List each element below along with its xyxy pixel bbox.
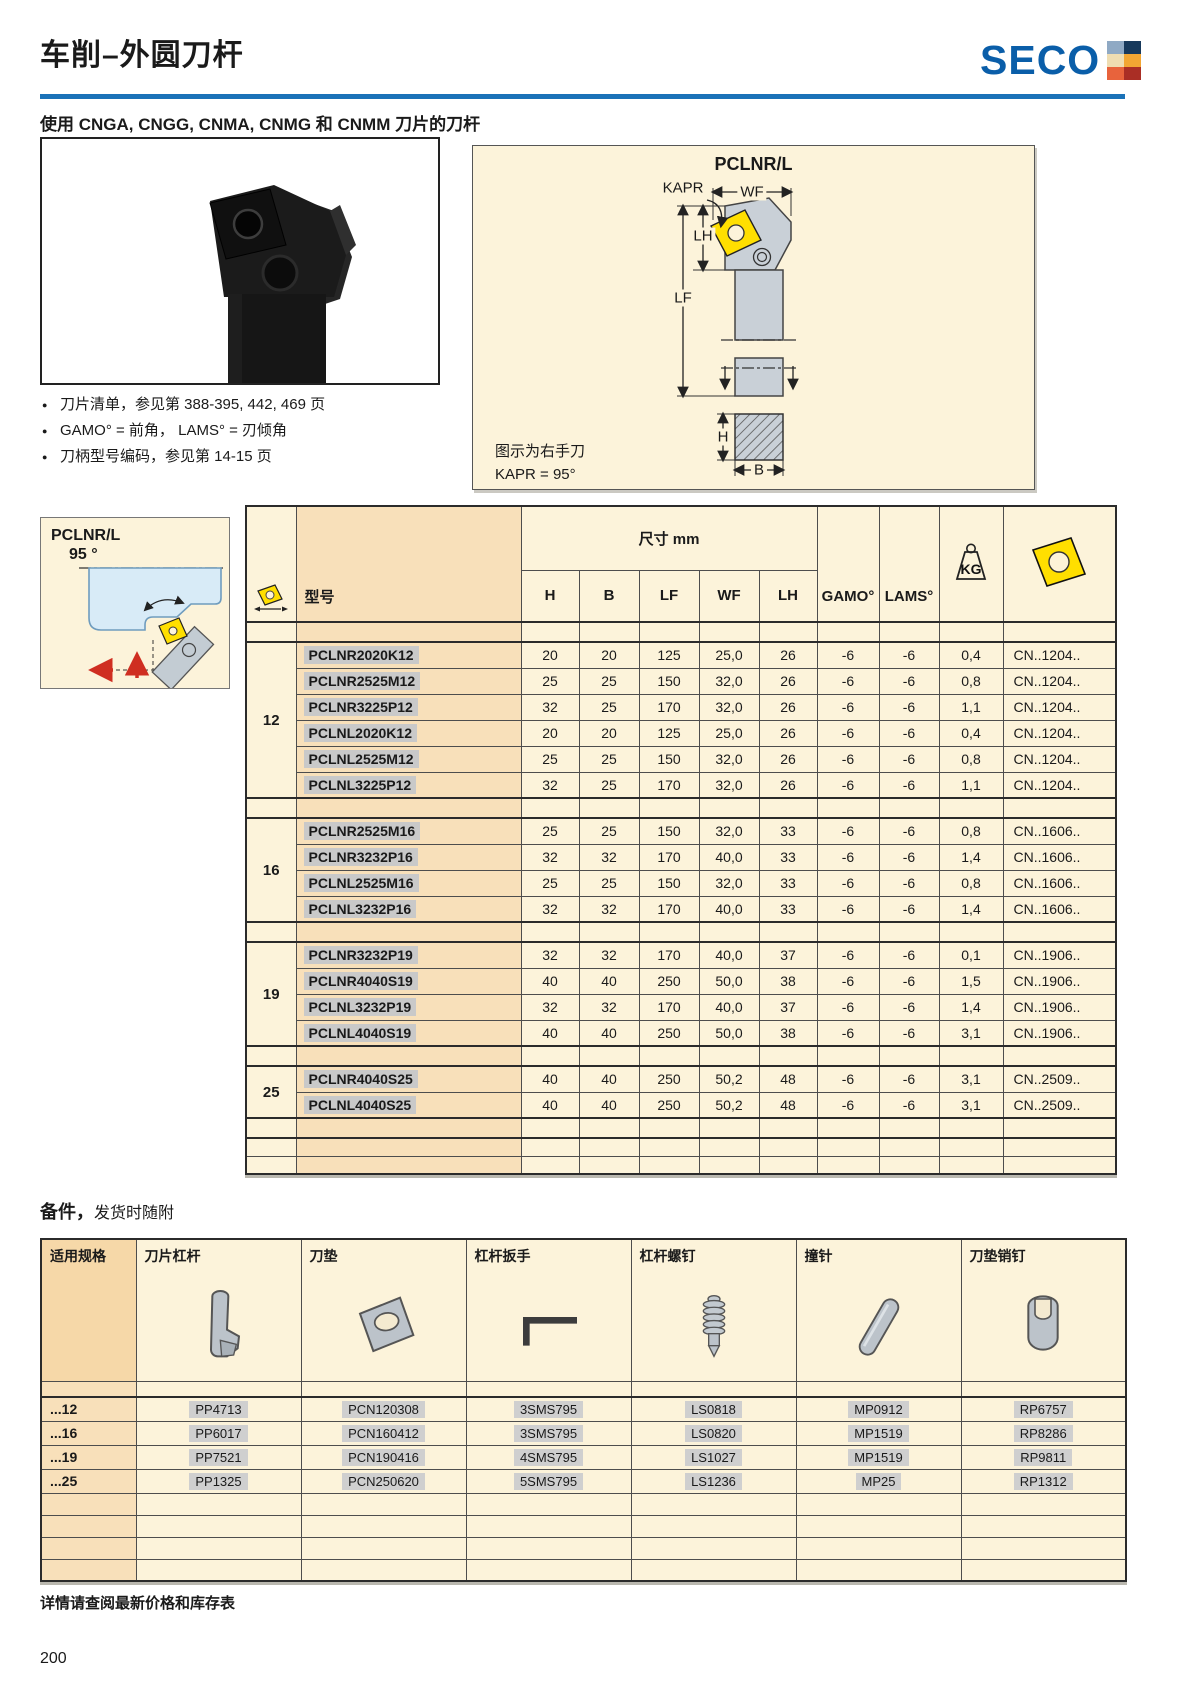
model-cell: PCLNL3232P16 <box>296 896 521 922</box>
empty-cell <box>246 1046 296 1066</box>
dim-cell: 40,0 <box>699 994 759 1020</box>
spare-col-header-size: 适用规格 <box>41 1239 136 1381</box>
empty-row <box>41 1381 1126 1397</box>
dim-cell: 32,0 <box>699 694 759 720</box>
empty-cell <box>41 1515 136 1537</box>
dim-cell: 1,1 <box>939 772 1003 798</box>
empty-cell <box>296 1156 521 1174</box>
dim-cell: 33 <box>759 844 817 870</box>
main-table-row: PCLNR3232P16323217040,033-6-61,4CN..1606… <box>246 844 1116 870</box>
model-cell: PCLNR4040S19 <box>296 968 521 994</box>
dim-cell: 48 <box>759 1092 817 1118</box>
dim-cell: 26 <box>759 720 817 746</box>
dim-cell: -6 <box>817 818 879 844</box>
spare-col-header-shim-pin: 刀垫销钉 <box>961 1239 1126 1381</box>
spare-part-cell: 3SMS795 <box>466 1421 631 1445</box>
dim-cell: 37 <box>759 942 817 968</box>
spare-part-cell: MP25 <box>796 1469 961 1493</box>
dim-cell: 150 <box>639 746 699 772</box>
model-column-header: 型号 <box>296 506 521 622</box>
dim-cell: 25 <box>579 870 639 896</box>
insert-code-cell: CN..1606.. <box>1003 818 1116 844</box>
empty-cell <box>817 1046 879 1066</box>
size-group-label: 16 <box>246 818 296 922</box>
dim-cell: 32 <box>579 844 639 870</box>
empty-cell <box>301 1537 466 1559</box>
dim-cell: 0,8 <box>939 818 1003 844</box>
dim-label-lh: LH <box>690 228 715 245</box>
dim-cell: 26 <box>759 668 817 694</box>
main-table-section: 型号 尺寸 mm GAMO° LAMS° KG <box>245 505 1117 1175</box>
spare-part-cell: 4SMS795 <box>466 1445 631 1469</box>
empty-cell <box>879 622 939 642</box>
empty-cell <box>699 1118 759 1138</box>
dim-cell: -6 <box>879 668 939 694</box>
dim-cell: 25 <box>521 668 579 694</box>
dim-cell: -6 <box>879 818 939 844</box>
empty-row <box>41 1559 1126 1581</box>
empty-cell <box>466 1493 631 1515</box>
empty-cell <box>759 622 817 642</box>
empty-cell <box>41 1559 136 1581</box>
empty-cell <box>879 1156 939 1174</box>
empty-cell <box>246 1138 296 1156</box>
seco-logo-squares <box>1107 41 1141 80</box>
size-group-label: 12 <box>246 642 296 798</box>
spare-size-cell: ...12 <box>41 1397 136 1421</box>
dim-cell: 50,2 <box>699 1066 759 1092</box>
dim-cell: -6 <box>879 694 939 720</box>
dim-cell: 25 <box>521 818 579 844</box>
dim-cell: 170 <box>639 942 699 968</box>
dim-cell: 32 <box>521 942 579 968</box>
empty-cell <box>521 1156 579 1174</box>
dim-cell: 1,4 <box>939 896 1003 922</box>
empty-cell <box>699 798 759 818</box>
dim-cell: -6 <box>879 942 939 968</box>
dim-cell: 32,0 <box>699 668 759 694</box>
application-drawing <box>41 518 229 688</box>
insert-width-icon-cell <box>246 506 296 622</box>
spare-part-cell: PP7521 <box>136 1445 301 1469</box>
dim-cell: 50,2 <box>699 1092 759 1118</box>
dim-cell: 26 <box>759 694 817 720</box>
spare-table-row: ...25PP1325PCN2506205SMS795LS1236MP25RP1… <box>41 1469 1126 1493</box>
dim-cell: 32,0 <box>699 870 759 896</box>
empty-cell <box>1003 798 1116 818</box>
empty-cell <box>521 798 579 818</box>
dim-cell: 0,4 <box>939 642 1003 668</box>
empty-cell <box>879 1046 939 1066</box>
dim-cell: 32 <box>521 772 579 798</box>
insert-code-cell: CN..1906.. <box>1003 942 1116 968</box>
dim-cell: 40 <box>521 968 579 994</box>
spare-col-header-pin: 撞针 <box>796 1239 961 1381</box>
empty-cell <box>1003 1138 1116 1156</box>
dim-cell: -6 <box>817 1066 879 1092</box>
empty-cell <box>759 1138 817 1156</box>
spare-table-body: ...12PP4713PCN1203083SMS795LS0818MP0912R… <box>41 1381 1126 1581</box>
empty-cell <box>639 798 699 818</box>
dim-cell: 25 <box>579 772 639 798</box>
empty-cell <box>41 1381 136 1397</box>
empty-cell <box>961 1537 1126 1559</box>
empty-cell <box>296 1118 521 1138</box>
diagram-caption: 图示为右手刀 KAPR = 95° <box>495 440 585 486</box>
spare-table-row: ...16PP6017PCN1604123SMS795LS0820MP1519R… <box>41 1421 1126 1445</box>
empty-cell <box>521 922 579 942</box>
empty-cell <box>699 922 759 942</box>
main-table-row: PCLNL4040S25404025050,248-6-63,1CN..2509… <box>246 1092 1116 1118</box>
empty-cell <box>796 1493 961 1515</box>
model-cell: PCLNL4040S19 <box>296 1020 521 1046</box>
dim-cell: 20 <box>521 642 579 668</box>
model-cell: PCLNL3232P19 <box>296 994 521 1020</box>
main-table-row: PCLNL4040S19404025050,038-6-63,1CN..1906… <box>246 1020 1116 1046</box>
dim-label-kapr: KAPR <box>660 180 707 197</box>
empty-cell <box>579 1138 639 1156</box>
empty-cell <box>759 1046 817 1066</box>
dim-cell: 33 <box>759 896 817 922</box>
dim-cell: 150 <box>639 818 699 844</box>
empty-cell <box>639 1046 699 1066</box>
dim-cell: 20 <box>521 720 579 746</box>
empty-cell <box>246 922 296 942</box>
empty-cell <box>817 622 879 642</box>
dim-cell: -6 <box>817 994 879 1020</box>
col-header-h: H <box>521 570 579 622</box>
main-table-row: PCLNL3225P12322517032,026-6-61,1CN..1204… <box>246 772 1116 798</box>
dim-cell: 1,1 <box>939 694 1003 720</box>
dim-cell: 40,0 <box>699 896 759 922</box>
empty-cell <box>1003 622 1116 642</box>
empty-row <box>246 922 1116 942</box>
model-cell: PCLNL2525M16 <box>296 870 521 896</box>
spare-part-cell: MP1519 <box>796 1445 961 1469</box>
spare-table-row: ...19PP7521PCN1904164SMS795LS1027MP1519R… <box>41 1445 1126 1469</box>
dim-cell: 20 <box>579 642 639 668</box>
model-cell: PCLNR4040S25 <box>296 1066 521 1092</box>
empty-cell <box>136 1493 301 1515</box>
empty-cell <box>41 1493 136 1515</box>
model-cell: PCLNL2525M12 <box>296 746 521 772</box>
spare-part-cell: RP9811 <box>961 1445 1126 1469</box>
spare-part-cell: PP1325 <box>136 1469 301 1493</box>
dim-cell: 25 <box>579 668 639 694</box>
caption-line: 图示为右手刀 <box>495 440 585 463</box>
empty-cell <box>521 1118 579 1138</box>
dim-cell: 150 <box>639 668 699 694</box>
empty-cell <box>639 1118 699 1138</box>
model-cell: PCLNR2020K12 <box>296 642 521 668</box>
dim-cell: -6 <box>879 994 939 1020</box>
insert-code-cell: CN..1606.. <box>1003 896 1116 922</box>
empty-cell <box>1003 1118 1116 1138</box>
dim-cell: 25,0 <box>699 720 759 746</box>
insert-code-cell: CN..1606.. <box>1003 870 1116 896</box>
spare-size-cell: ...25 <box>41 1469 136 1493</box>
empty-cell <box>521 1138 579 1156</box>
insert-code-cell: CN..1906.. <box>1003 994 1116 1020</box>
model-cell: PCLNL4040S25 <box>296 1092 521 1118</box>
main-table-row: PCLNR4040S19404025050,038-6-61,5CN..1906… <box>246 968 1116 994</box>
empty-cell <box>466 1537 631 1559</box>
empty-cell <box>699 1138 759 1156</box>
insert-code-cell: CN..1204.. <box>1003 642 1116 668</box>
empty-row <box>246 622 1116 642</box>
insert-code-cell: CN..2509.. <box>1003 1066 1116 1092</box>
spare-part-cell: PCN250620 <box>301 1469 466 1493</box>
dim-cell: 32,0 <box>699 746 759 772</box>
dim-cell: 125 <box>639 642 699 668</box>
dim-cell: 40 <box>579 1020 639 1046</box>
dim-cell: 250 <box>639 1066 699 1092</box>
dim-cell: 1,5 <box>939 968 1003 994</box>
insert-lever-icon <box>179 1284 259 1370</box>
dim-cell: 1,4 <box>939 994 1003 1020</box>
empty-cell <box>296 622 521 642</box>
dim-cell: 0,8 <box>939 870 1003 896</box>
dim-cell: 250 <box>639 968 699 994</box>
empty-cell <box>939 1138 1003 1156</box>
dim-cell: 38 <box>759 968 817 994</box>
empty-row <box>246 1118 1116 1138</box>
spare-part-cell: RP1312 <box>961 1469 1126 1493</box>
dim-cell: 38 <box>759 1020 817 1046</box>
spare-part-cell: 3SMS795 <box>466 1397 631 1421</box>
tool-photo-image <box>42 139 438 383</box>
main-table-row: PCLNR3225P12322517032,026-6-61,1CN..1204… <box>246 694 1116 720</box>
dim-cell: 40,0 <box>699 844 759 870</box>
dim-cell: 40 <box>521 1020 579 1046</box>
empty-cell <box>796 1559 961 1581</box>
spares-section-title: 备件，发货时随附 <box>40 1198 174 1224</box>
dim-cell: 40 <box>579 968 639 994</box>
dim-cell: -6 <box>817 870 879 896</box>
shim-icon <box>344 1284 424 1370</box>
dim-cell: -6 <box>879 772 939 798</box>
dim-cell: -6 <box>817 1020 879 1046</box>
empty-cell <box>961 1559 1126 1581</box>
note-item: 刀片清单，参见第 388-395, 442, 469 页 <box>42 392 325 418</box>
empty-cell <box>817 1118 879 1138</box>
insert-code-cell: CN..2509.. <box>1003 1092 1116 1118</box>
main-table-body: 12PCLNR2020K12202012525,026-6-60,4CN..12… <box>246 622 1116 1174</box>
page-number: 200 <box>40 1650 67 1668</box>
spare-part-cell: 5SMS795 <box>466 1469 631 1493</box>
wrench-icon <box>509 1284 589 1370</box>
caption-line: KAPR = 95° <box>495 463 585 486</box>
dim-cell: 25,0 <box>699 642 759 668</box>
dim-cell: 40 <box>521 1066 579 1092</box>
main-table-row: PCLNL3232P16323217040,033-6-61,4CN..1606… <box>246 896 1116 922</box>
dim-cell: 170 <box>639 994 699 1020</box>
dim-cell: -6 <box>879 642 939 668</box>
model-cell: PCLNR2525M16 <box>296 818 521 844</box>
dim-cell: 26 <box>759 772 817 798</box>
empty-cell <box>939 1156 1003 1174</box>
dim-cell: -6 <box>817 1092 879 1118</box>
empty-cell <box>759 1118 817 1138</box>
main-table-row: 12PCLNR2020K12202012525,026-6-60,4CN..12… <box>246 642 1116 668</box>
dim-cell: 40 <box>579 1066 639 1092</box>
dim-cell: 37 <box>759 994 817 1020</box>
spare-col-header-shim: 刀垫 <box>301 1239 466 1381</box>
empty-cell <box>521 622 579 642</box>
dim-cell: -6 <box>879 1066 939 1092</box>
model-cell: PCLNR3232P16 <box>296 844 521 870</box>
empty-cell <box>579 1046 639 1066</box>
empty-cell <box>296 922 521 942</box>
empty-cell <box>301 1559 466 1581</box>
empty-cell <box>879 798 939 818</box>
insert-code-cell: CN..1906.. <box>1003 1020 1116 1046</box>
dim-label-lf: LF <box>671 290 695 307</box>
dim-cell: -6 <box>817 968 879 994</box>
model-cell: PCLNR2525M12 <box>296 668 521 694</box>
empty-cell <box>817 1156 879 1174</box>
empty-row <box>41 1537 1126 1559</box>
spare-size-cell: ...19 <box>41 1445 136 1469</box>
insert-code-cell: CN..1204.. <box>1003 772 1116 798</box>
main-table-row: 16PCLNR2525M16252515032,033-6-60,8CN..16… <box>246 818 1116 844</box>
dim-label-wf: WF <box>737 184 766 201</box>
dim-cell: 25 <box>579 818 639 844</box>
empty-cell <box>699 1156 759 1174</box>
dim-cell: 170 <box>639 896 699 922</box>
spare-part-cell: RP6757 <box>961 1397 1126 1421</box>
dim-cell: 32 <box>521 994 579 1020</box>
empty-cell <box>296 798 521 818</box>
empty-cell <box>296 1046 521 1066</box>
empty-row <box>246 1156 1116 1174</box>
dim-cell: 32 <box>579 896 639 922</box>
dim-cell: -6 <box>817 642 879 668</box>
empty-cell <box>246 1156 296 1174</box>
empty-cell <box>699 622 759 642</box>
empty-cell <box>961 1515 1126 1537</box>
empty-cell <box>817 1138 879 1156</box>
empty-cell <box>521 1046 579 1066</box>
empty-cell <box>759 922 817 942</box>
empty-cell <box>796 1515 961 1537</box>
col-header-lh: LH <box>759 570 817 622</box>
dim-cell: 170 <box>639 694 699 720</box>
dim-cell: 25 <box>521 746 579 772</box>
note-item: 刀柄型号编码，参见第 14-15 页 <box>42 444 325 470</box>
dim-cell: 32 <box>579 994 639 1020</box>
header-rule <box>40 94 1125 99</box>
dim-cell: -6 <box>879 896 939 922</box>
spare-part-cell: PCN120308 <box>301 1397 466 1421</box>
dim-cell: 170 <box>639 772 699 798</box>
main-table-row: 19PCLNR3232P19323217040,037-6-60,1CN..19… <box>246 942 1116 968</box>
seco-logo-text: SECO <box>980 40 1100 80</box>
empty-cell <box>579 1118 639 1138</box>
dim-cell: -6 <box>817 668 879 694</box>
lams-column-header: LAMS° <box>879 506 939 622</box>
dim-cell: 0,8 <box>939 746 1003 772</box>
main-table-row: PCLNL2525M12252515032,026-6-60,8CN..1204… <box>246 746 1116 772</box>
spare-part-cell: LS0818 <box>631 1397 796 1421</box>
empty-cell <box>301 1493 466 1515</box>
empty-cell <box>1003 1156 1116 1174</box>
empty-cell <box>246 1118 296 1138</box>
empty-cell <box>41 1537 136 1559</box>
empty-cell <box>631 1559 796 1581</box>
dim-cell: 25 <box>579 746 639 772</box>
empty-cell <box>639 922 699 942</box>
insert-code-cell: CN..1204.. <box>1003 746 1116 772</box>
spare-table: 适用规格 刀片杠杆 刀垫 <box>40 1238 1127 1582</box>
dimension-diagram-box: PCLNR/L <box>472 145 1035 490</box>
empty-cell <box>631 1381 796 1397</box>
spare-size-cell: ...16 <box>41 1421 136 1445</box>
spare-col-header-wrench: 杠杆扳手 <box>466 1239 631 1381</box>
dim-cell: 26 <box>759 746 817 772</box>
dim-cell: 125 <box>639 720 699 746</box>
dim-cell: 40 <box>521 1092 579 1118</box>
dim-cell: -6 <box>879 1020 939 1046</box>
main-table-row: PCLNL2020K12202012525,026-6-60,4CN..1204… <box>246 720 1116 746</box>
empty-cell <box>579 922 639 942</box>
spare-table-row: ...12PP4713PCN1203083SMS795LS0818MP0912R… <box>41 1397 1126 1421</box>
spare-part-cell: LS1236 <box>631 1469 796 1493</box>
empty-cell <box>136 1515 301 1537</box>
dim-cell: -6 <box>879 720 939 746</box>
dim-cell: 3,1 <box>939 1092 1003 1118</box>
empty-cell <box>466 1559 631 1581</box>
dim-cell: 25 <box>521 870 579 896</box>
dim-cell: 50,0 <box>699 1020 759 1046</box>
spare-part-cell: MP1519 <box>796 1421 961 1445</box>
spare-part-cell: PP6017 <box>136 1421 301 1445</box>
empty-cell <box>961 1381 1126 1397</box>
dim-cell: 32 <box>579 942 639 968</box>
dim-cell: 250 <box>639 1020 699 1046</box>
tool-photo <box>40 137 440 385</box>
main-table-row: PCLNL3232P19323217040,037-6-61,4CN..1906… <box>246 994 1116 1020</box>
empty-cell <box>796 1381 961 1397</box>
empty-cell <box>631 1515 796 1537</box>
empty-cell <box>1003 922 1116 942</box>
main-table: 型号 尺寸 mm GAMO° LAMS° KG <box>245 505 1117 1175</box>
dim-cell: 250 <box>639 1092 699 1118</box>
empty-cell <box>301 1515 466 1537</box>
dim-cell: 25 <box>579 694 639 720</box>
note-item: GAMO° = 前角， LAMS° = 刃倾角 <box>42 418 325 444</box>
dim-cell: 50,0 <box>699 968 759 994</box>
dim-cell: -6 <box>879 1092 939 1118</box>
empty-cell <box>466 1381 631 1397</box>
seco-logo: SECO <box>980 40 1141 80</box>
dim-cell: 26 <box>759 642 817 668</box>
empty-cell <box>246 798 296 818</box>
dim-label-h: H <box>715 429 732 446</box>
empty-cell <box>879 1138 939 1156</box>
empty-row <box>246 798 1116 818</box>
insert-code-cell: CN..1204.. <box>1003 694 1116 720</box>
dim-cell: 170 <box>639 844 699 870</box>
empty-cell <box>631 1493 796 1515</box>
insert-shape-icon <box>1019 532 1099 594</box>
spare-col-header-screw: 杠杆螺钉 <box>631 1239 796 1381</box>
dim-cell: -6 <box>817 942 879 968</box>
spare-part-cell: RP8286 <box>961 1421 1126 1445</box>
dim-cell: -6 <box>879 968 939 994</box>
empty-cell <box>817 798 879 818</box>
spares-title-bold: 备件， <box>40 1202 94 1222</box>
